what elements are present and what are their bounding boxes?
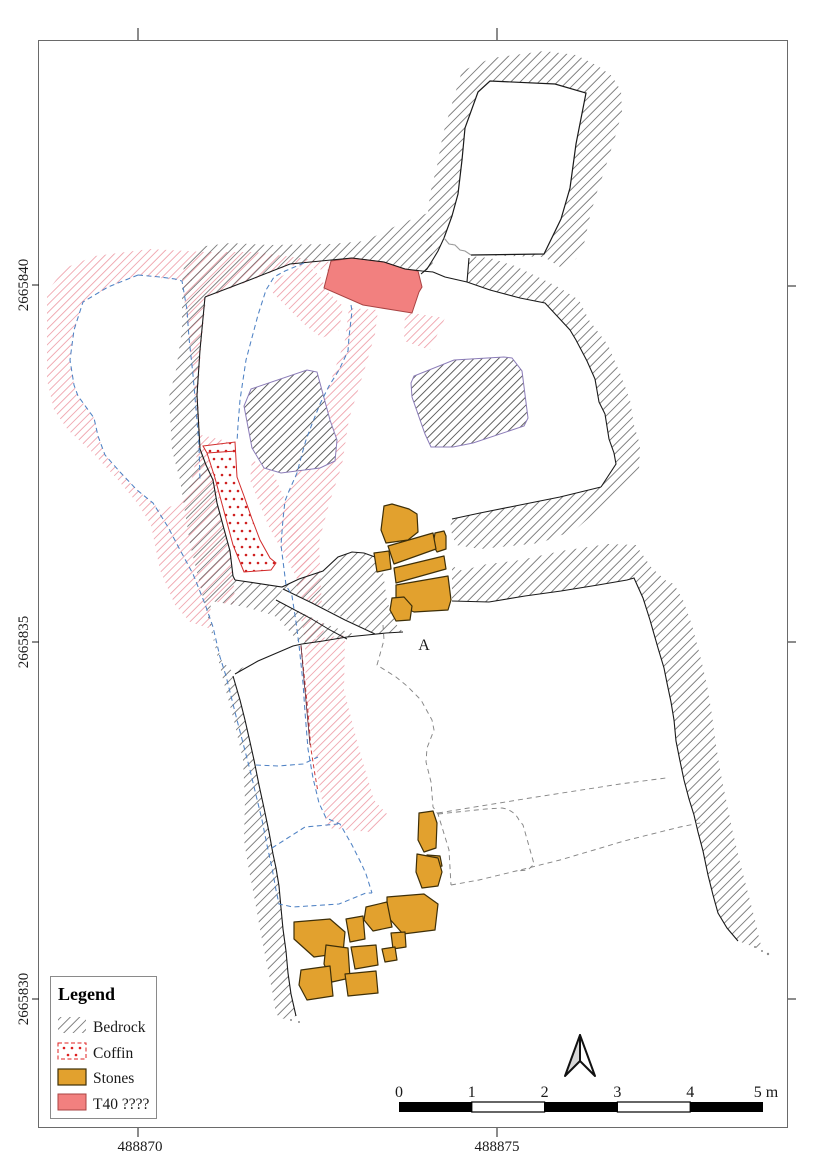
svg-text:Bedrock: Bedrock (93, 1019, 146, 1036)
svg-text:Legend: Legend (58, 984, 115, 1004)
svg-text:4: 4 (686, 1084, 694, 1101)
svg-text:488875: 488875 (475, 1139, 520, 1155)
svg-text:Stones: Stones (93, 1070, 134, 1087)
svg-text:T40 ????: T40 ???? (93, 1096, 149, 1113)
svg-text:5 m: 5 m (754, 1084, 779, 1101)
svg-text:2: 2 (541, 1084, 549, 1101)
svg-text:488870: 488870 (118, 1139, 163, 1155)
svg-text:3: 3 (613, 1084, 621, 1101)
svg-text:0: 0 (395, 1084, 403, 1101)
svg-text:A: A (418, 637, 430, 654)
svg-text:2665830: 2665830 (16, 973, 32, 1026)
svg-text:Coffin: Coffin (93, 1045, 133, 1062)
svg-text:2665840: 2665840 (16, 259, 32, 312)
svg-text:2665835: 2665835 (16, 616, 32, 669)
svg-text:1: 1 (468, 1084, 476, 1101)
